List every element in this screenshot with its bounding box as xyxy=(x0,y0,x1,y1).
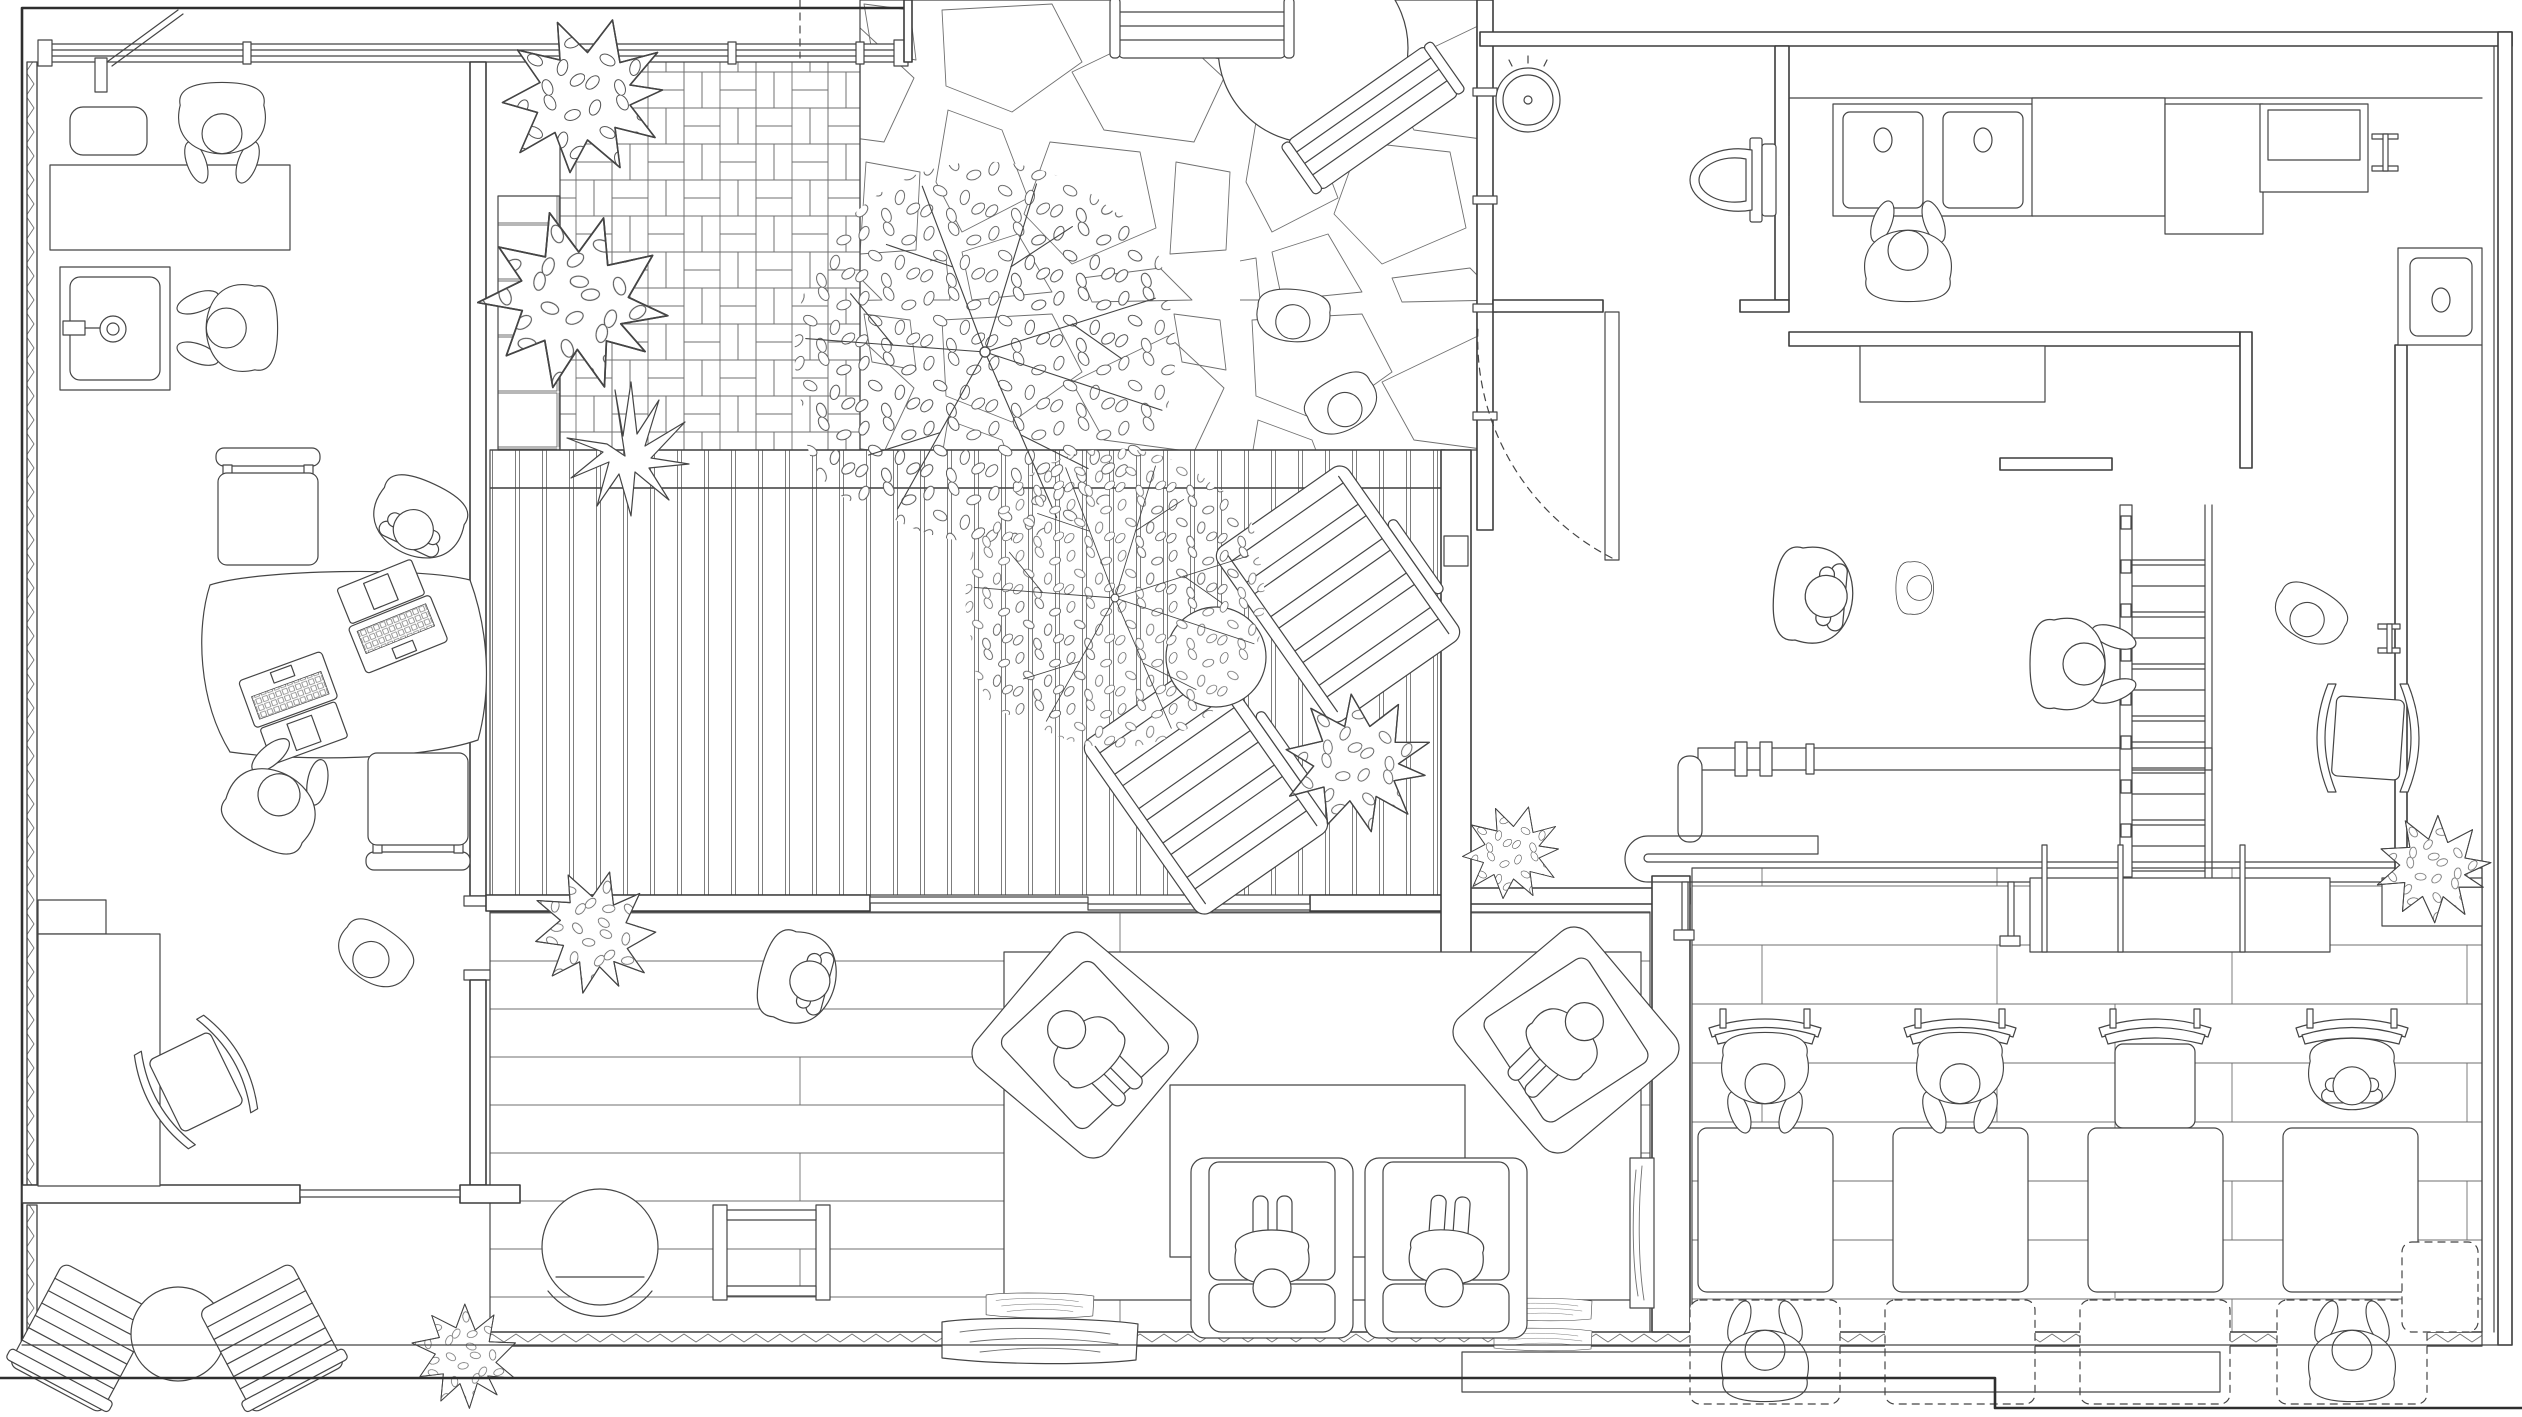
hall-east-wall xyxy=(2395,345,2407,875)
island-bench xyxy=(1860,346,2045,402)
corner-sink xyxy=(2398,248,2482,345)
wc-east-wall xyxy=(1775,46,1789,300)
east-wall xyxy=(2498,32,2512,1345)
deck-east-wall xyxy=(1441,450,1471,1010)
bench-seat xyxy=(2402,1242,2478,1332)
lounge-sliding-door-a[interactable] xyxy=(870,897,1088,903)
wood-slab xyxy=(942,1318,1138,1363)
floor-plan-drawing xyxy=(0,0,2522,1417)
wc-pivot-door[interactable] xyxy=(1478,312,1619,560)
service-counter xyxy=(50,165,290,250)
office-east-wall xyxy=(470,62,486,896)
kitchen-south-wall xyxy=(1789,332,2240,346)
kitchen xyxy=(1789,98,2482,402)
shelf xyxy=(38,900,106,934)
base-unit xyxy=(2032,98,2165,216)
north-east-wall xyxy=(1480,32,2512,46)
person-corridor xyxy=(2266,573,2355,655)
study-table xyxy=(2283,1128,2418,1292)
garden-patio xyxy=(4,1260,534,1417)
wood-slab-small xyxy=(986,1293,1094,1318)
media-panel xyxy=(1630,1158,1654,1308)
wc-room xyxy=(1496,56,1776,222)
small-tree xyxy=(965,448,1264,747)
office-sink xyxy=(60,267,170,390)
glazed-screen-north xyxy=(40,44,906,62)
double-sink xyxy=(1833,104,2033,216)
garden-bench xyxy=(1110,0,1294,58)
stair[interactable] xyxy=(2120,505,2212,877)
living-dining-wall xyxy=(1652,876,1690,1332)
round-basin xyxy=(1496,56,1560,132)
person-at-sink xyxy=(174,285,278,372)
toilet xyxy=(1690,138,1776,222)
courtyard-glazed-wall xyxy=(1473,0,1497,530)
worktop-appliance xyxy=(70,107,147,155)
office-south-wall xyxy=(22,1185,520,1203)
office-studio xyxy=(38,82,486,1186)
potted-shrub xyxy=(1463,807,1559,899)
tall-unit xyxy=(2165,104,2263,234)
wall-cabinet xyxy=(2260,104,2368,192)
insulated-wall-west xyxy=(27,62,37,1185)
person-child xyxy=(1896,562,1934,615)
office-sliding-door[interactable] xyxy=(300,1190,460,1197)
service-counter xyxy=(2030,878,2330,952)
mixer-tap[interactable] xyxy=(63,321,85,335)
task-chair xyxy=(216,448,320,565)
tap-rail xyxy=(2372,134,2398,171)
task-chair xyxy=(366,753,470,870)
study-table xyxy=(1893,1128,2028,1292)
dining-chair-seat xyxy=(2115,1044,2195,1128)
person-dining xyxy=(2309,1038,2396,1109)
floor-plan-canvas xyxy=(0,0,2522,1417)
person-walking xyxy=(327,909,422,998)
study-table xyxy=(1698,1128,1833,1292)
patio-lounger xyxy=(194,1260,351,1417)
study-table xyxy=(2088,1128,2223,1292)
person-hall xyxy=(1770,544,1857,646)
person-at-desk xyxy=(361,465,476,572)
